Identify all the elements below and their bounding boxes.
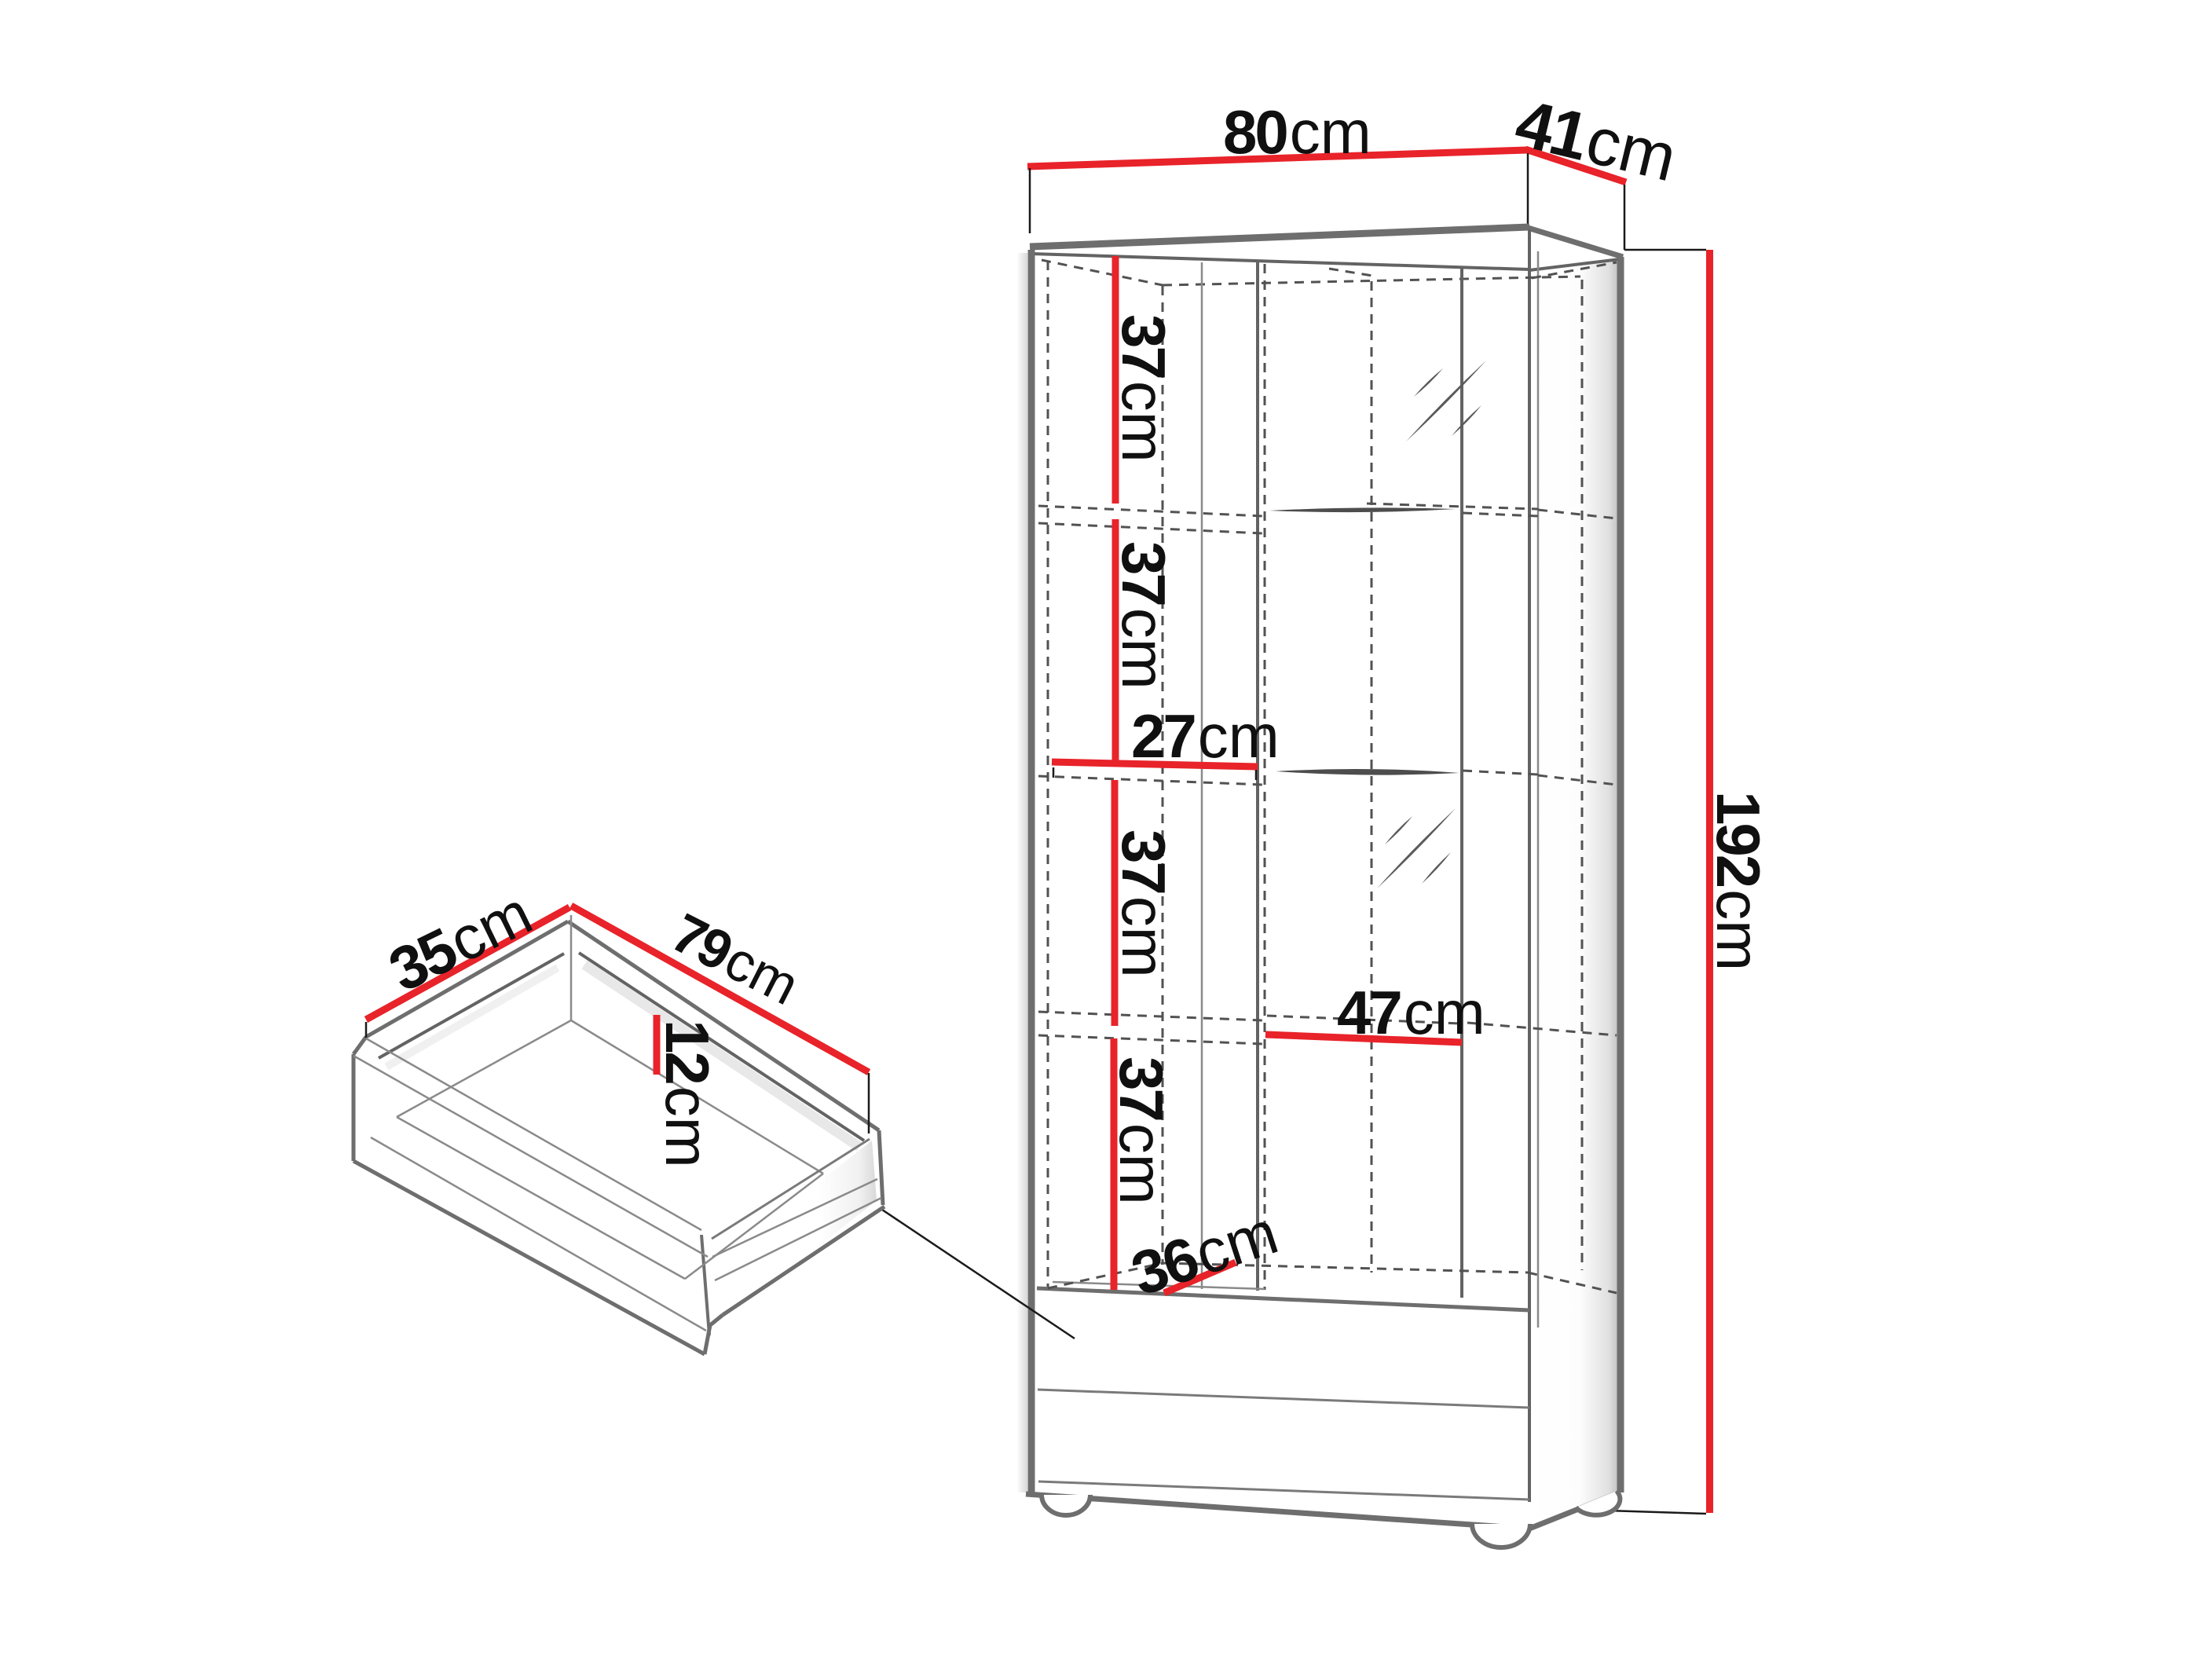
svg-text:37cm: 37cm — [1109, 829, 1178, 978]
svg-text:37cm: 37cm — [1107, 1057, 1176, 1205]
svg-text:80cm: 80cm — [1223, 97, 1372, 167]
svg-text:192cm: 192cm — [1704, 791, 1773, 971]
svg-text:47cm: 47cm — [1337, 978, 1485, 1047]
svg-text:37cm: 37cm — [1109, 314, 1178, 463]
svg-text:27cm: 27cm — [1131, 701, 1280, 771]
svg-text:37cm: 37cm — [1109, 541, 1178, 690]
svg-text:12cm: 12cm — [653, 1020, 722, 1168]
